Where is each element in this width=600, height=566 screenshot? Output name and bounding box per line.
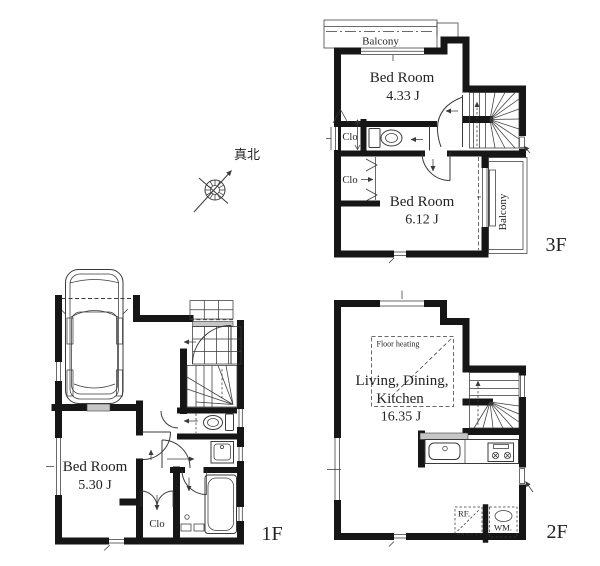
car-mirrors — [61, 309, 129, 314]
windows-2f — [327, 291, 527, 547]
entrance-1f — [184, 301, 241, 365]
north-label: 真北 — [234, 147, 260, 162]
floor-label-1f: 1F — [261, 523, 282, 545]
kitchen-counter-2f — [420, 433, 519, 464]
balcony-right-label-3f: Balcony — [497, 193, 509, 230]
faucet-icon — [443, 446, 448, 451]
interior-walls-1f — [55, 352, 241, 541]
garage-corner-wall-1f — [137, 299, 191, 319]
outer-wall-2f — [338, 304, 523, 537]
bedroom2-name-3f: Bed Room — [390, 194, 455, 210]
floor-plan-drawing: 真北 — [0, 0, 600, 566]
north-arrow-icon — [194, 171, 232, 213]
washing-machine-label: WM. — [494, 523, 512, 533]
bedroom-size-1f: 5.30 J — [78, 478, 112, 493]
closet-label-1f: Clo — [149, 519, 164, 530]
ldk-size: 16.35 J — [381, 410, 422, 425]
closet2-label-3f: Clo — [342, 175, 357, 186]
washroom-1f — [162, 440, 234, 468]
outer-wall-1f — [59, 299, 241, 542]
floor-plan-1f: Bed Room 5.30 J Clo 1F — [46, 270, 283, 551]
stove — [488, 443, 514, 462]
kitchen-sink — [429, 443, 460, 460]
toilet-3f — [369, 126, 430, 151]
bedroom-doors-1f — [141, 432, 173, 510]
front-door-arc — [193, 326, 232, 365]
ldk-name-line2: Kitchen — [376, 391, 424, 407]
shower-drain-icon — [185, 515, 189, 519]
ldk-name-line1: Living, Dining, — [356, 373, 449, 389]
bedroom1-size-3f: 4.33 J — [386, 89, 420, 104]
bathroom-1f — [181, 470, 237, 534]
bathtub — [205, 475, 237, 534]
car-icon — [61, 270, 129, 404]
doors-3f — [422, 95, 463, 181]
bedroom2-size-3f: 6.12 J — [405, 213, 439, 228]
floor-plan-2f: Floor heating Living, Dining, Kitchen 16… — [327, 291, 568, 547]
floor-plan-page: 真北 — [0, 0, 600, 566]
garage-step — [87, 404, 110, 411]
toilet-1f — [161, 411, 234, 433]
north-compass-icon: 真北 — [194, 147, 260, 212]
floor-plan-3f: Balcony Bed Room 4.33 J Clo Clo Bed Room… — [324, 20, 567, 263]
refrigerator-label: RF. — [458, 509, 470, 519]
bedroom1-name-3f: Bed Room — [370, 70, 435, 86]
floor-heating-label: Floor heating — [377, 340, 420, 349]
kitchen-hood — [420, 433, 468, 440]
interior-walls-3f — [338, 122, 488, 204]
floor-label-2f: 2F — [546, 521, 567, 543]
staircase-1f — [187, 366, 237, 408]
balcony-top-label-3f: Balcony — [362, 36, 399, 48]
bedroom-name-1f: Bed Room — [63, 459, 128, 475]
closet1-label-3f: Clo — [342, 132, 357, 143]
floor-label-3f: 3F — [545, 234, 566, 256]
